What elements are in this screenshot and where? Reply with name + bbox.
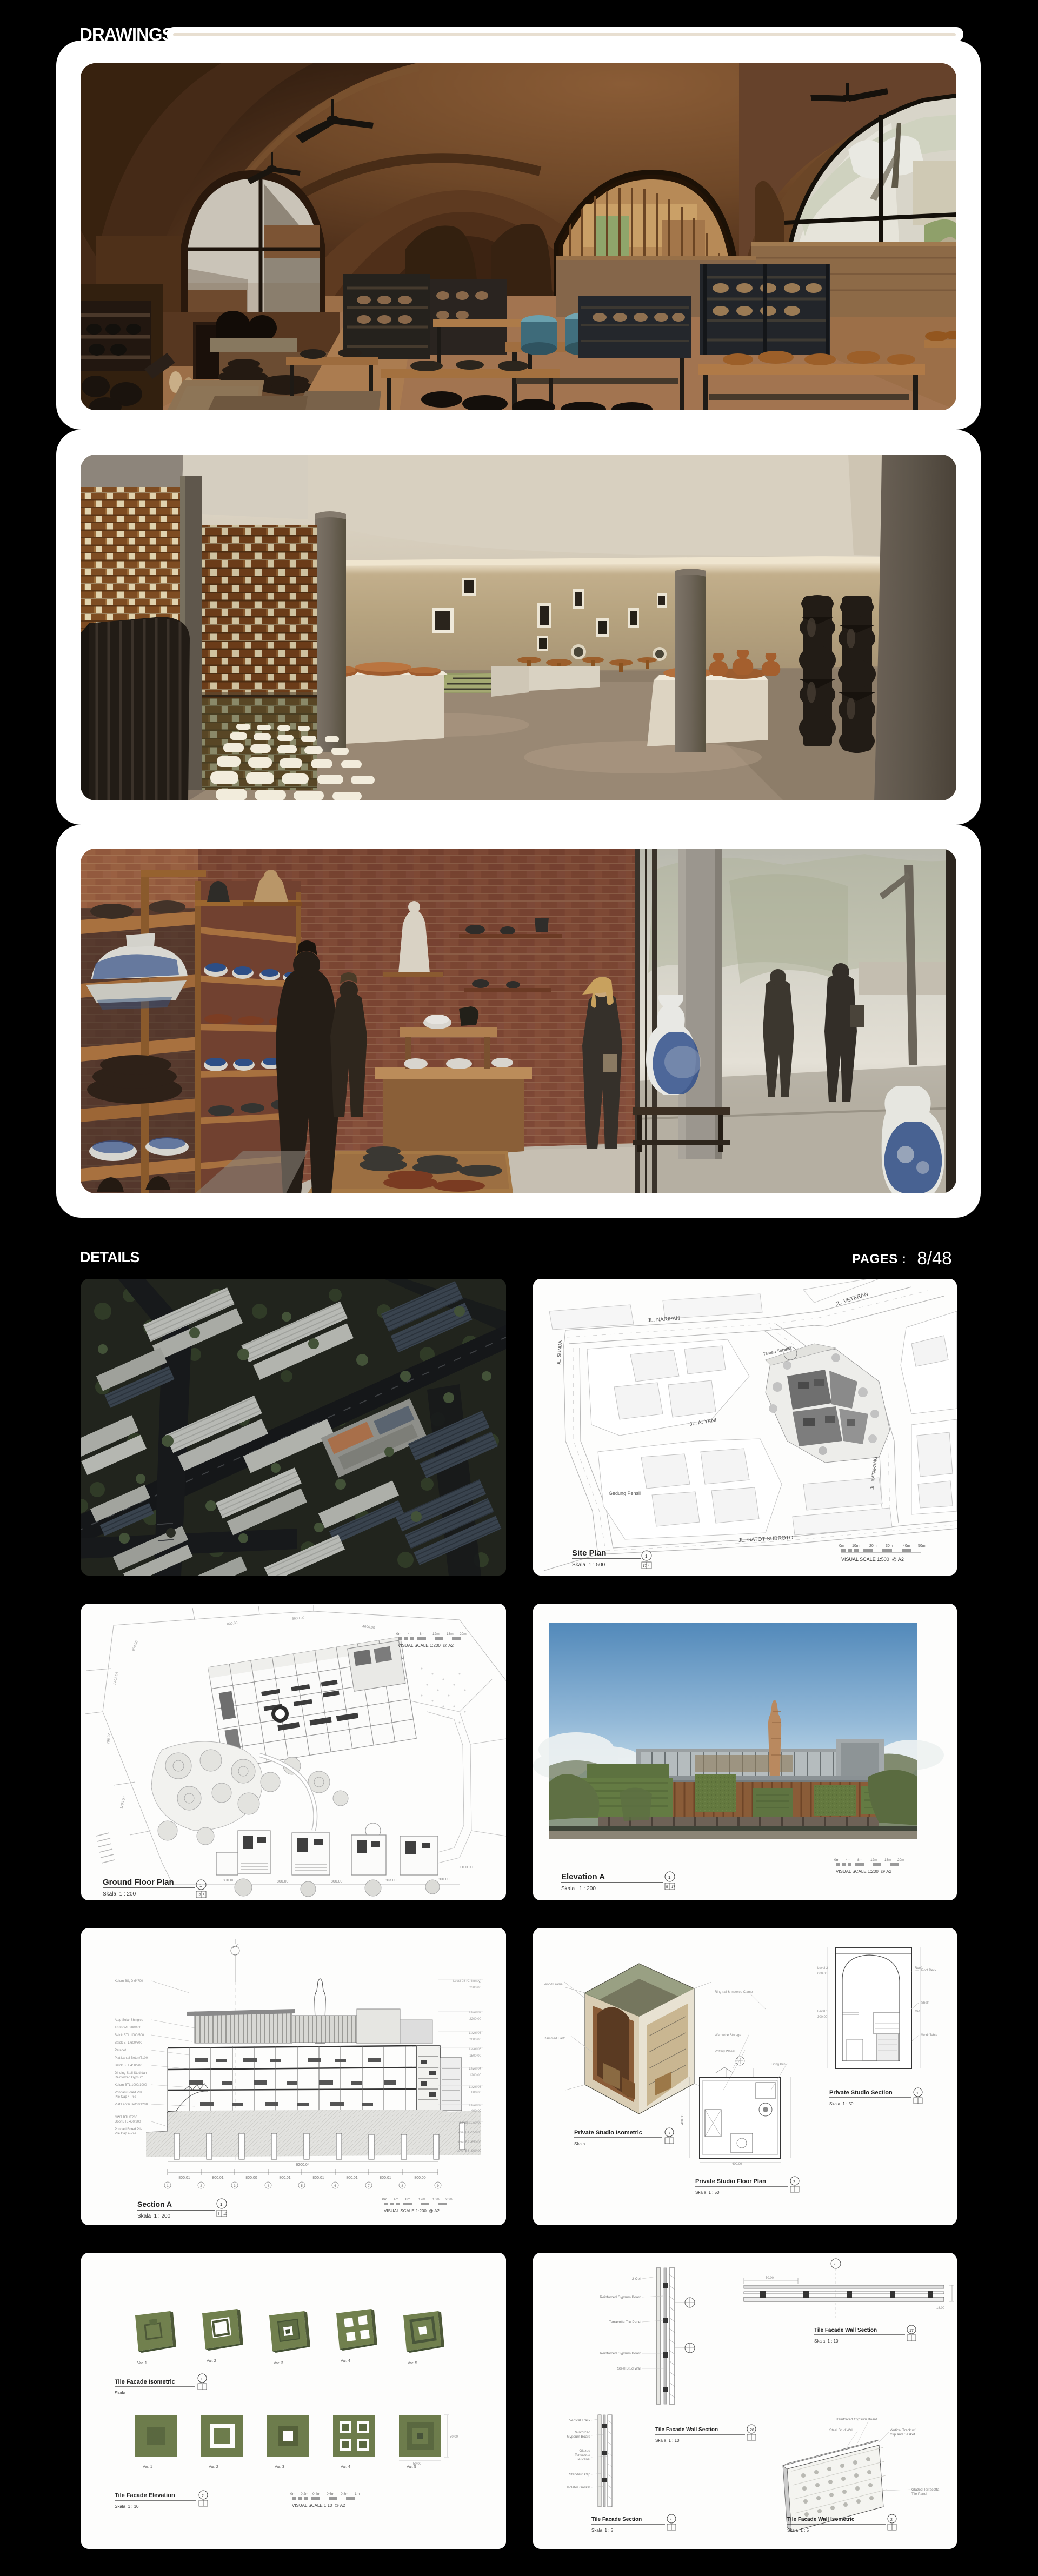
svg-text:20m: 20m — [460, 1632, 467, 1636]
svg-text:Skala 1 : 5: Skala 1 : 5 — [591, 2528, 614, 2533]
svg-text:VISUAL SCALE 1:200 @ A2: VISUAL SCALE 1:200 @ A2 — [836, 1869, 892, 1874]
svg-text:Tile Facade Isometric: Tile Facade Isometric — [115, 2379, 175, 2385]
svg-text:Steel Stud Wall: Steel Stud Wall — [829, 2428, 854, 2432]
svg-text:50.00: 50.00 — [766, 2277, 774, 2280]
svg-text:Tile Facade Wall Isometric: Tile Facade Wall Isometric — [787, 2517, 855, 2522]
svg-text:Level 1: Level 1 — [817, 2010, 828, 2013]
svg-text:Pondasi Bored Pile: Pondasi Bored Pile — [115, 2128, 143, 2131]
svg-text:Atap Solar Shingles: Atap Solar Shingles — [115, 2019, 143, 2022]
svg-text:Level 05: Level 05 — [469, 2048, 481, 2051]
svg-text:2200.00: 2200.00 — [469, 2018, 481, 2021]
svg-text:50.00: 50.00 — [450, 2435, 458, 2439]
svg-text:Firing Kiln: Firing Kiln — [771, 2063, 786, 2066]
svg-text:Level 03: Level 03 — [469, 2086, 481, 2089]
svg-text:16m: 16m — [884, 1858, 891, 1862]
svg-text:12m: 12m — [432, 1632, 440, 1636]
svg-text:Tile Panel: Tile Panel — [911, 2492, 927, 2496]
svg-text:Wardrobe Storage: Wardrobe Storage — [715, 2034, 741, 2037]
svg-text:4: 4 — [670, 2518, 672, 2522]
svg-text:800.01: 800.01 — [178, 2176, 190, 2180]
svg-text:Skala 1 : 50: Skala 1 : 50 — [695, 2190, 720, 2195]
svg-text:30m: 30m — [886, 1544, 893, 1548]
svg-text:Private Studio Section: Private Studio Section — [829, 2090, 893, 2096]
svg-text:10: 10 — [223, 2213, 227, 2216]
svg-text:Skala 1 : 200: Skala 1 : 200 — [561, 1886, 596, 1892]
svg-text:16m: 16m — [432, 2198, 440, 2201]
svg-text:VISUAL SCALE 1:10 @ A2: VISUAL SCALE 1:10 @ A2 — [292, 2503, 345, 2508]
svg-text:Level 02: Level 02 — [469, 2104, 481, 2107]
svg-text:800.01: 800.01 — [312, 2176, 324, 2180]
svg-text:400.00: 400.00 — [732, 2163, 742, 2166]
svg-text:Terracotta: Terracotta — [575, 2453, 590, 2457]
svg-text:2: 2 — [793, 2180, 795, 2184]
svg-text:12m: 12m — [418, 2198, 425, 2201]
svg-text:0m: 0m — [834, 1858, 839, 1862]
svg-text:Level 06: Level 06 — [469, 2032, 481, 2035]
svg-text:Shelf: Shelf — [921, 2001, 929, 2005]
svg-text:800.00: 800.00 — [277, 1880, 289, 1884]
svg-text:17: 17 — [909, 2329, 914, 2333]
svg-text:Skala 1 : 10: Skala 1 : 10 — [115, 2504, 139, 2509]
svg-text:Ground Floor Plan: Ground Floor Plan — [103, 1878, 174, 1887]
svg-text:1: 1 — [199, 1883, 202, 1888]
svg-text:8m: 8m — [857, 1858, 862, 1862]
svg-text:18.00: 18.00 — [936, 2307, 945, 2310]
svg-text:17: 17 — [643, 1565, 647, 1568]
svg-text:Mid: Mid — [915, 2010, 920, 2013]
svg-text:4m: 4m — [846, 1858, 850, 1862]
svg-text:8m: 8m — [420, 1632, 424, 1636]
svg-text:1: 1 — [201, 2378, 203, 2381]
svg-text:800.00: 800.00 — [223, 1879, 235, 1883]
svg-text:Var. 4: Var. 4 — [341, 2359, 350, 2363]
svg-text:4m: 4m — [394, 2198, 398, 2201]
svg-text:Reinforced Gypsum Board: Reinforced Gypsum Board — [600, 2352, 641, 2355]
svg-text:Reinforced: Reinforced — [574, 2431, 591, 2434]
svg-text:Skala 1 : 50: Skala 1 : 50 — [829, 2101, 854, 2106]
svg-text:Tile Facade Section: Tile Facade Section — [591, 2517, 642, 2522]
svg-text:400.00: 400.00 — [471, 2110, 482, 2113]
svg-text:Roof Deck: Roof Deck — [921, 1969, 937, 1972]
svg-text:Skala: Skala — [574, 2141, 585, 2146]
svg-text:2-Cell: 2-Cell — [632, 2277, 642, 2281]
svg-text:Pondasi Bored Pile: Pondasi Bored Pile — [115, 2091, 143, 2094]
svg-text:Private Studio Floor Plan: Private Studio Floor Plan — [695, 2178, 766, 2185]
svg-text:800.00: 800.00 — [471, 2091, 482, 2094]
svg-text:Section A: Section A — [137, 2200, 172, 2208]
svg-text:Reinforced Gypsum Board: Reinforced Gypsum Board — [836, 2418, 877, 2421]
svg-text:20m: 20m — [869, 1544, 877, 1548]
svg-text:Truss WF 200/100: Truss WF 200/100 — [115, 2026, 142, 2030]
svg-text:Work Table: Work Table — [921, 2034, 937, 2037]
svg-text:Wood Frame: Wood Frame — [544, 1983, 563, 1986]
svg-text:20m: 20m — [445, 2198, 453, 2201]
svg-text:600.00: 600.00 — [817, 1972, 828, 1976]
svg-text:17: 17 — [197, 1894, 201, 1897]
svg-text:Kolom BTL 1000/1000: Kolom BTL 1000/1000 — [115, 2084, 147, 2087]
svg-text:Var. 5: Var. 5 — [407, 2465, 416, 2469]
svg-text:0m: 0m — [839, 1544, 844, 1548]
svg-text:4: 4 — [834, 2263, 836, 2267]
svg-text:17: 17 — [671, 1886, 675, 1889]
svg-text:Ring-rail & Indexed Clamp: Ring-rail & Indexed Clamp — [715, 1991, 753, 1994]
svg-text:800.01: 800.01 — [212, 2176, 224, 2180]
svg-text:1100.00: 1100.00 — [460, 1866, 473, 1870]
svg-text:Level 08 (Chimney): Level 08 (Chimney) — [453, 1980, 481, 1983]
svg-text:16m: 16m — [447, 1632, 454, 1636]
svg-text:Elevation A: Elevation A — [561, 1872, 605, 1881]
svg-text:Var. 2: Var. 2 — [207, 2359, 216, 2363]
svg-text:Var. 5: Var. 5 — [408, 2361, 417, 2365]
svg-text:Standard Clip: Standard Clip — [569, 2473, 591, 2477]
svg-text:2: 2 — [890, 2518, 893, 2522]
svg-text:VISUAL SCALE 1:200 @ A2: VISUAL SCALE 1:200 @ A2 — [398, 1643, 454, 1648]
svg-text:Skala: Skala — [115, 2391, 126, 2395]
svg-text:8m: 8m — [405, 2198, 410, 2201]
svg-text:0.6m: 0.6m — [327, 2492, 334, 2496]
svg-text:Pile Cap 4-Pile: Pile Cap 4-Pile — [115, 2132, 136, 2135]
svg-text:Kolom BS, D Ø 700: Kolom BS, D Ø 700 — [115, 1980, 143, 1983]
svg-text:2000.00: 2000.00 — [469, 2038, 481, 2041]
svg-text:Site Plan: Site Plan — [572, 1549, 606, 1558]
svg-text:Plat Lantai Beton/T200: Plat Lantai Beton/T200 — [115, 2103, 148, 2106]
svg-text:Reinforced Gypsum: Reinforced Gypsum — [115, 2076, 143, 2079]
svg-text:1: 1 — [645, 1554, 648, 1559]
svg-text:Pottery Wheel: Pottery Wheel — [715, 2050, 735, 2053]
svg-text:Var. 1: Var. 1 — [137, 2361, 147, 2365]
svg-text:800.00: 800.00 — [414, 2176, 426, 2180]
svg-text:Var. 4: Var. 4 — [341, 2465, 350, 2469]
svg-text:0.2m: 0.2m — [301, 2492, 308, 2496]
svg-text:Plat Lantai Beton/T100: Plat Lantai Beton/T100 — [115, 2057, 148, 2060]
svg-text:Tile Panel: Tile Panel — [575, 2458, 590, 2461]
svg-text:800.01: 800.01 — [279, 2176, 291, 2180]
svg-text:Var. 2: Var. 2 — [209, 2465, 218, 2469]
svg-text:Balok BTL 450/200: Balok BTL 450/200 — [115, 2064, 142, 2067]
svg-text:Var. 3: Var. 3 — [275, 2465, 284, 2469]
svg-text:20m: 20m — [897, 1858, 904, 1862]
svg-text:1500.00: 1500.00 — [469, 2054, 481, 2058]
svg-text:Level 04: Level 04 — [469, 2067, 481, 2071]
svg-text:Glazed: Glazed — [579, 2449, 590, 2453]
svg-text:0m: 0m — [290, 2492, 295, 2496]
svg-text:Skala 1 : 200: Skala 1 : 200 — [103, 1891, 136, 1897]
svg-text:4m: 4m — [408, 1632, 412, 1636]
svg-text:3: 3 — [668, 2132, 670, 2135]
svg-text:10m: 10m — [852, 1544, 860, 1548]
svg-text:0.4m: 0.4m — [312, 2492, 320, 2496]
svg-text:12m: 12m — [870, 1858, 877, 1862]
svg-text:Tile Facade Elevation: Tile Facade Elevation — [115, 2492, 175, 2499]
svg-text:Skala 1 : 500: Skala 1 : 500 — [572, 1562, 605, 1568]
svg-text:Glazed Terracotta: Glazed Terracotta — [911, 2488, 940, 2492]
svg-text:1: 1 — [916, 2092, 919, 2095]
svg-text:Dinding Stell Stud dan: Dinding Stell Stud dan — [115, 2072, 147, 2075]
svg-text:Clip and Gasket: Clip and Gasket — [890, 2433, 915, 2437]
svg-text:Skala 1 : 10: Skala 1 : 10 — [655, 2438, 680, 2443]
svg-text:Skala 1 : 10: Skala 1 : 10 — [814, 2339, 839, 2344]
svg-text:Level 07: Level 07 — [469, 2011, 481, 2014]
svg-text:Private Studio Isometric: Private Studio Isometric — [574, 2130, 642, 2136]
svg-text:Steel Stud Wall: Steel Stud Wall — [617, 2367, 642, 2371]
svg-text:Level 2: Level 2 — [817, 1967, 828, 1970]
svg-text:GWT BTL/T200: GWT BTL/T200 — [115, 2116, 138, 2119]
svg-text:800.01: 800.01 — [346, 2176, 358, 2180]
svg-text:803.00: 803.00 — [385, 1879, 397, 1883]
svg-text:300.00: 300.00 — [817, 2016, 828, 2019]
svg-text:0m: 0m — [396, 1632, 401, 1636]
svg-text:Tile Facade Wall Section: Tile Facade Wall Section — [814, 2327, 877, 2333]
svg-text:Rammed Earth: Rammed Earth — [544, 2037, 565, 2040]
svg-text:1: 1 — [220, 2202, 223, 2207]
svg-text:6200.04: 6200.04 — [296, 2163, 309, 2167]
svg-text:1m: 1m — [355, 2492, 360, 2496]
svg-text:Skala 1 : 5: Skala 1 : 5 — [787, 2528, 809, 2533]
svg-text:50m: 50m — [918, 1544, 926, 1548]
svg-text:800.01: 800.01 — [380, 2176, 391, 2180]
svg-text:VISUAL SCALE 1:500 @ A2: VISUAL SCALE 1:500 @ A2 — [841, 1557, 904, 1562]
svg-text:Gedung Pensil: Gedung Pensil — [609, 1491, 641, 1496]
svg-text:VISUAL SCALE 1:200 @ A2: VISUAL SCALE 1:200 @ A2 — [384, 2208, 440, 2213]
svg-text:800.00: 800.00 — [331, 1880, 343, 1884]
svg-text:400.00: 400.00 — [681, 2114, 684, 2125]
svg-text:40m: 40m — [903, 1544, 910, 1548]
svg-text:Gypsum Board: Gypsum Board — [567, 2435, 591, 2439]
svg-text:Skala 1 : 200: Skala 1 : 200 — [137, 2213, 171, 2219]
svg-text:Level B1 -350.00: Level B1 -350.00 — [457, 2131, 482, 2134]
svg-text:Terracotta Tile Panel: Terracotta Tile Panel — [609, 2320, 642, 2324]
svg-text:Vertical Track w/: Vertical Track w/ — [890, 2428, 916, 2432]
svg-text:1: 1 — [668, 1875, 671, 1880]
svg-text:Doof BTL 450/200: Doof BTL 450/200 — [115, 2120, 141, 2124]
svg-text:Vertical Track: Vertical Track — [569, 2419, 591, 2422]
svg-text:800.00: 800.00 — [438, 1878, 450, 1881]
svg-text:Parapet: Parapet — [115, 2049, 126, 2052]
svg-text:Var. 1: Var. 1 — [143, 2465, 152, 2469]
svg-text:2300.00: 2300.00 — [469, 1986, 481, 1990]
svg-text:Reinforced Gypsum Board: Reinforced Gypsum Board — [600, 2295, 641, 2299]
svg-text:50.00: 50.00 — [413, 2462, 422, 2466]
svg-text:Balok BTL 1000/500: Balok BTL 1000/500 — [115, 2034, 144, 2037]
svg-text:Pile Cap 4-Pile: Pile Cap 4-Pile — [115, 2095, 136, 2099]
svg-text:Isolator Gasket: Isolator Gasket — [567, 2486, 590, 2490]
svg-text:Balok BTL 600/300: Balok BTL 600/300 — [115, 2041, 142, 2045]
svg-text:Level B3 -900.00: Level B3 -900.00 — [457, 2150, 482, 2153]
svg-text:Var. 3: Var. 3 — [274, 2361, 283, 2365]
svg-text:Level B2 -650.00: Level B2 -650.00 — [457, 2141, 482, 2144]
svg-text:0m: 0m — [382, 2198, 387, 2201]
svg-text:2: 2 — [202, 2494, 204, 2498]
svg-text:Level 01 ±0.00: Level 01 ±0.00 — [460, 2121, 482, 2125]
svg-text:Tile Facade Wall Section: Tile Facade Wall Section — [655, 2427, 718, 2433]
svg-text:1200.00: 1200.00 — [469, 2074, 481, 2077]
svg-text:0.8m: 0.8m — [341, 2492, 348, 2496]
svg-text:26: 26 — [750, 2428, 754, 2432]
svg-text:800.00: 800.00 — [245, 2176, 257, 2180]
